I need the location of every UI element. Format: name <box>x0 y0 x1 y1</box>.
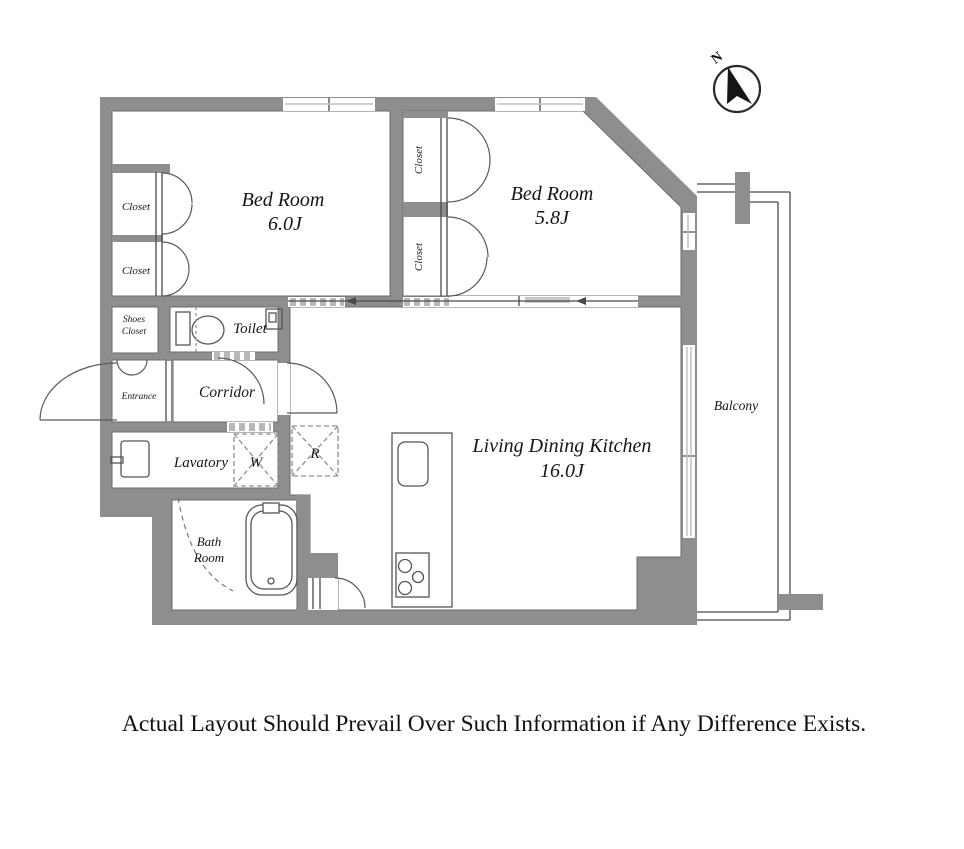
floor-plan-page: N Bed Room 6.0J Bed Room 5.8J Living Din… <box>0 0 964 849</box>
opening-corridor-ldk <box>278 363 290 415</box>
bedroom-b-name: Bed Room <box>511 183 594 205</box>
bath-room-label-2: Room <box>193 550 224 565</box>
shoes-closet-label-1: Shoes <box>123 315 145 325</box>
entrance-label: Entrance <box>121 392 157 402</box>
toilet-label: Toilet <box>233 321 267 337</box>
wall-mid-closet-cap <box>403 111 448 118</box>
balcony-label: Balcony <box>714 398 758 413</box>
bathtub-outer <box>246 505 297 595</box>
bathtub-faucet-deck <box>263 503 279 513</box>
north-label: N <box>709 49 726 67</box>
closet-mid-bottom-label: Closet <box>413 242 425 271</box>
wall-above-left-closets <box>112 164 170 173</box>
kitchen-sink <box>398 442 428 486</box>
floor-plan-canvas: N Bed Room 6.0J Bed Room 5.8J Living Din… <box>0 0 964 849</box>
lavatory-label: Lavatory <box>173 455 229 471</box>
wall-bath-ldk-block <box>303 553 338 578</box>
bedroom-b-size: 5.8J <box>535 207 570 229</box>
ldk-size: 16.0J <box>540 460 585 482</box>
bedroom-a-size: 6.0J <box>268 213 303 235</box>
bedroom-a-name: Bed Room <box>242 189 325 211</box>
room-ldk <box>290 307 681 610</box>
ldk-name: Living Dining Kitchen <box>472 435 652 457</box>
north-compass: N <box>709 49 760 112</box>
balcony-partition <box>735 172 750 224</box>
window-balcony-door <box>683 345 695 538</box>
closet-left-top-label: Closet <box>122 201 151 213</box>
opening-bedroom-a-door <box>288 297 345 307</box>
bath-room-label-1: Bath <box>197 534 222 549</box>
shoes-closet-label-2: Closet <box>122 327 147 337</box>
closet-mid-top-label: Closet <box>413 145 425 174</box>
closet-left-bottom-label: Closet <box>122 265 151 277</box>
fridge-label: R <box>309 446 319 462</box>
disclaimer-text: Actual Layout Should Prevail Over Such I… <box>122 711 866 737</box>
washer-label: W <box>250 455 264 471</box>
corridor-label: Corridor <box>199 384 256 401</box>
balcony-drain-tab <box>778 594 823 610</box>
north-arrow-icon <box>727 67 752 104</box>
balcony-structure <box>697 172 823 620</box>
